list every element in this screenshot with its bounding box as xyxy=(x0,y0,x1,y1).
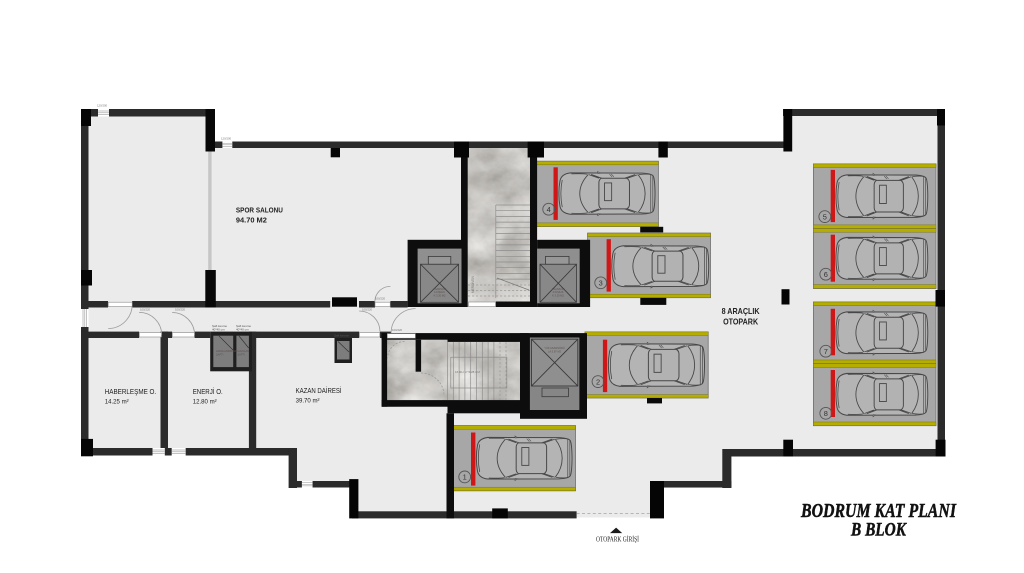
svg-text:100/220: 100/220 xyxy=(392,328,403,332)
svg-text:B BLOK: B BLOK xyxy=(850,520,907,541)
svg-text:6: 6 xyxy=(824,270,828,279)
svg-text:40*40 cm: 40*40 cm xyxy=(212,327,225,331)
svg-text:100/220: 100/220 xyxy=(140,308,151,312)
svg-text:OTOPARK GİRİŞİ: OTOPARK GİRİŞİ xyxy=(596,537,640,544)
svg-text:Şaft kesme: Şaft kesme xyxy=(334,334,349,338)
svg-text:KAZAN DAİRESİ: KAZAN DAİRESİ xyxy=(296,386,342,395)
svg-text:ENERJİ O.: ENERJİ O. xyxy=(193,387,223,396)
svg-text:HAVALANDIRMA: HAVALANDIRMA xyxy=(216,349,236,353)
svg-text:120/200: 120/200 xyxy=(221,137,232,141)
svg-text:K 3.20 M2: K 3.20 M2 xyxy=(434,293,446,297)
svg-text:HABERLEŞME O.: HABERLEŞME O. xyxy=(105,389,157,396)
svg-text:LA 3.97 M2: LA 3.97 M2 xyxy=(548,350,562,354)
svg-text:ŞAFTI: ŞAFTI xyxy=(237,352,245,356)
svg-text:40*40 cm: 40*40 cm xyxy=(236,327,249,331)
svg-text:MERDİVEN: MERDİVEN xyxy=(470,275,475,293)
svg-text:OTOPARK: OTOPARK xyxy=(723,317,758,327)
svg-text:ŞAFTI: ŞAFTI xyxy=(216,352,224,356)
svg-text:5: 5 xyxy=(823,212,827,221)
svg-text:94.70 M2: 94.70 M2 xyxy=(236,216,267,225)
svg-text:3: 3 xyxy=(599,279,603,288)
svg-text:1: 1 xyxy=(463,473,467,482)
svg-text:8: 8 xyxy=(824,409,828,418)
svg-text:39.70 m²: 39.70 m² xyxy=(296,398,320,405)
svg-text:YÜK ASANSÖRÜ: YÜK ASANSÖRÜ xyxy=(544,346,565,350)
svg-text:120/200: 120/200 xyxy=(97,104,108,108)
svg-text:16 RH 17.5/28 CM: 16 RH 17.5/28 CM xyxy=(455,370,480,374)
svg-text:12.80 m²: 12.80 m² xyxy=(193,399,217,406)
svg-text:100/220: 100/220 xyxy=(375,297,386,301)
svg-text:2: 2 xyxy=(596,377,600,386)
svg-text:8 ARAÇLIK: 8 ARAÇLIK xyxy=(722,306,760,316)
svg-text:7: 7 xyxy=(824,347,828,356)
svg-text:K 3.20 M2: K 3.20 M2 xyxy=(552,293,564,297)
svg-text:100/220: 100/220 xyxy=(175,308,186,312)
svg-text:HAVALAN.: HAVALAN. xyxy=(237,349,250,353)
svg-text:14.25 m²: 14.25 m² xyxy=(105,399,129,406)
svg-text:4: 4 xyxy=(547,205,551,214)
svg-text:100/220: 100/220 xyxy=(362,308,373,312)
svg-text:SPOR SALONU: SPOR SALONU xyxy=(236,206,283,215)
